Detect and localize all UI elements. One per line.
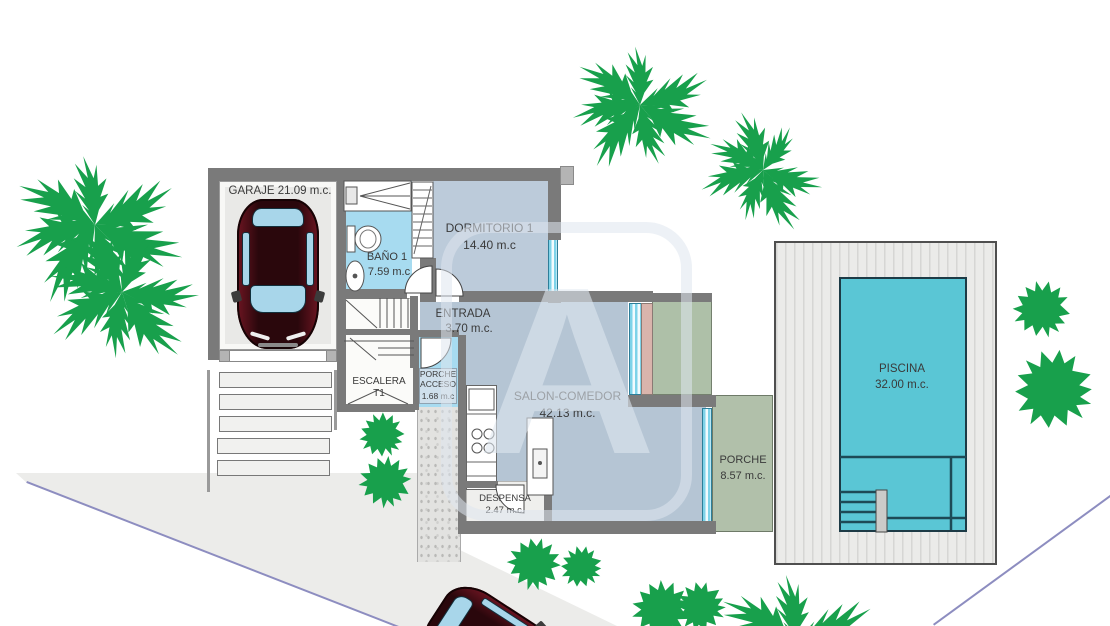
label-entry-name: ENTRADA <box>424 308 502 322</box>
car-side-window <box>242 232 250 286</box>
label-living-area: 42.13 m.c. <box>505 406 630 420</box>
car-windshield <box>250 285 306 313</box>
label-bathroom-name: BAÑO 1 <box>360 251 414 264</box>
car-bumper <box>258 343 298 347</box>
toilet-icon <box>347 226 381 252</box>
plan-details-layer <box>0 0 1110 626</box>
label-pool-area: 32.00 m.c. <box>862 379 942 393</box>
label-access-porch-2: ACCESO <box>419 379 457 389</box>
wardrobe-icon <box>412 182 433 258</box>
car-side-window <box>306 232 314 286</box>
label-pool-name: PISCINA <box>862 363 942 377</box>
label-entry-area: 3.70 m.c. <box>430 323 508 337</box>
label-bedroom-area: 14.40 m.c <box>432 238 547 252</box>
label-pantry-name: DESPENSA <box>471 493 539 504</box>
label-stairs-area: T1 <box>348 388 410 400</box>
label-living-name: SALON-COMEDOR <box>505 389 630 403</box>
stove-icon <box>466 389 497 476</box>
pool-steps-icon <box>840 457 966 532</box>
kitchen-island-icon <box>527 418 553 495</box>
floor-plan-canvas: GARAJE 21.09 m.c. BAÑO 1 7.59 m.c DORMIT… <box>0 0 1110 626</box>
label-access-porch-area: 1.68 m.c <box>419 391 457 401</box>
shower-icon <box>344 181 411 211</box>
label-garage: GARAJE 21.09 m.c. <box>224 185 336 199</box>
label-bathroom-area: 7.59 m.c <box>362 266 416 279</box>
label-stairs-name: ESCALERA <box>348 376 410 388</box>
label-access-porch-1: PORCHE <box>419 369 457 379</box>
label-porch-name: PORCHE <box>714 454 772 467</box>
car-rear-window <box>252 208 304 227</box>
label-bedroom-name: DORMITORIO 1 <box>432 221 547 235</box>
car-in-garage <box>237 199 319 349</box>
label-pantry-area: 2.47 m.c. <box>471 505 539 516</box>
label-porch-area: 8.57 m.c. <box>714 470 772 483</box>
